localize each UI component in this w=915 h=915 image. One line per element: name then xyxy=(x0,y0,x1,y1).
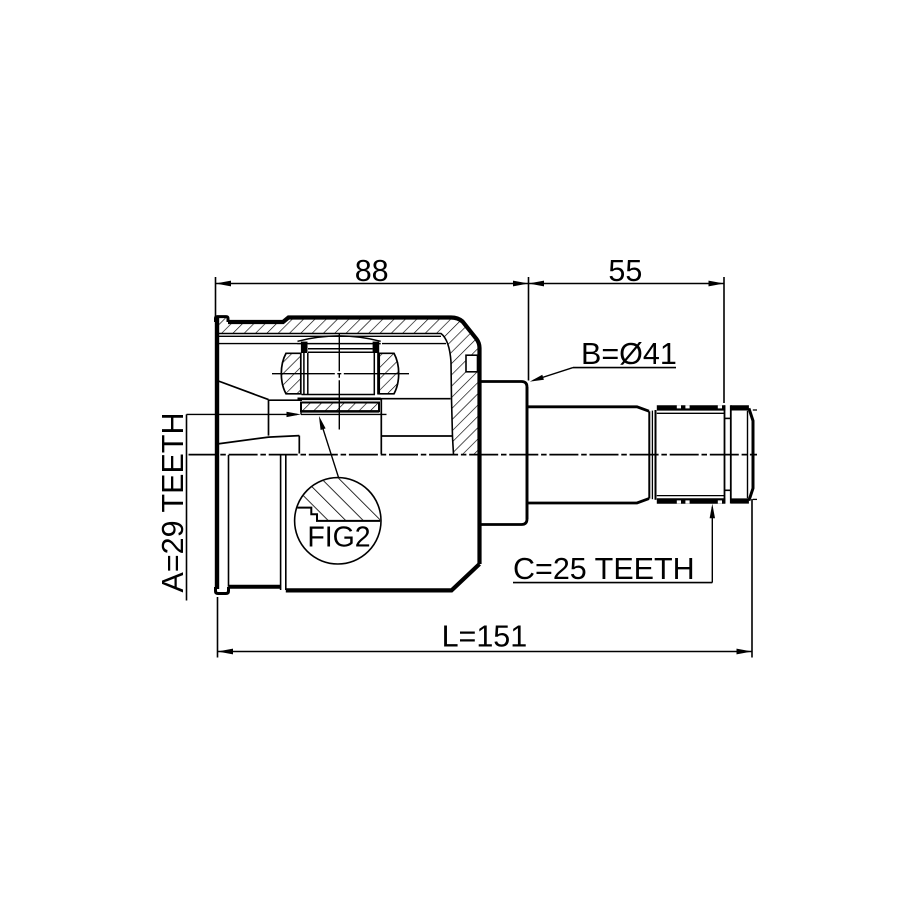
svg-text:FIG2: FIG2 xyxy=(307,522,370,554)
svg-text:A=29 TEETH: A=29 TEETH xyxy=(156,413,190,593)
svg-text:L=151: L=151 xyxy=(442,620,528,654)
svg-text:B=Ø41: B=Ø41 xyxy=(581,337,677,371)
svg-text:55: 55 xyxy=(608,254,642,288)
svg-text:C=25 TEETH: C=25 TEETH xyxy=(513,552,695,586)
svg-text:88: 88 xyxy=(355,254,389,288)
